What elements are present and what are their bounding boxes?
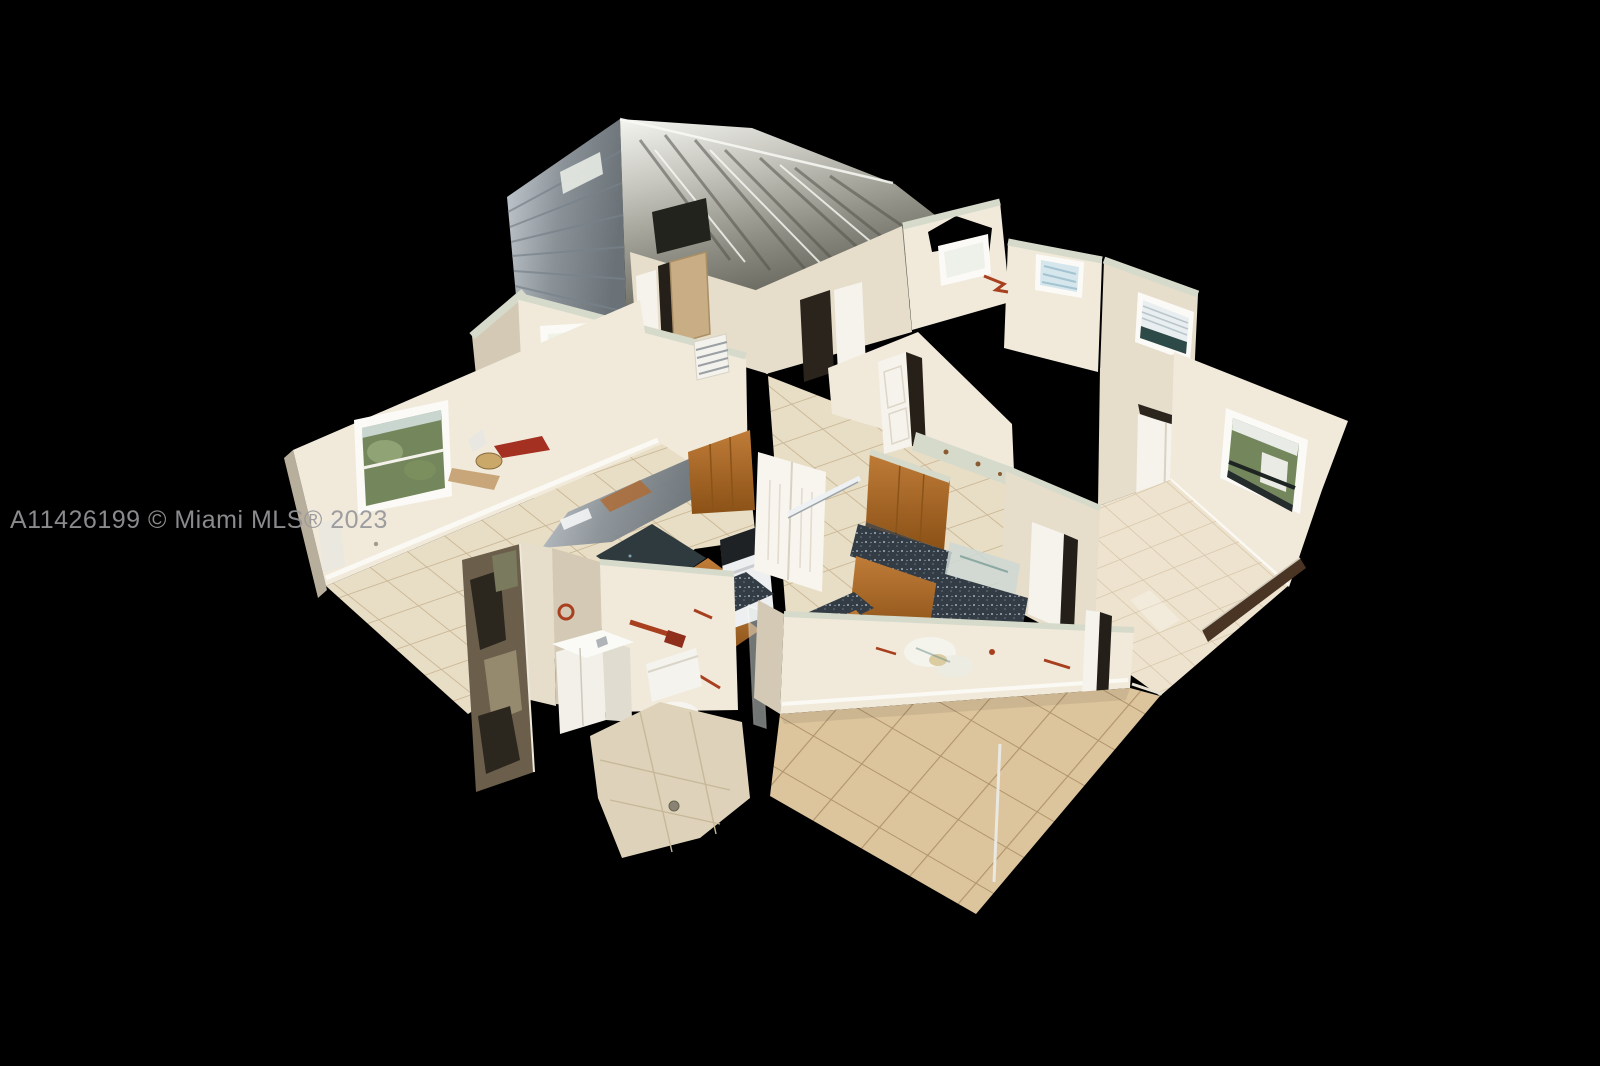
mls-photo-3d-dollhouse[interactable]: A11426199 © Miami MLS® 2023	[0, 0, 1600, 1066]
mls-watermark: A11426199 © Miami MLS® 2023	[10, 506, 388, 535]
living-room-window	[354, 400, 452, 514]
shower-drain	[669, 801, 679, 811]
entry-door-open	[670, 252, 710, 344]
bedroom-door	[1028, 522, 1064, 628]
hvac-return-grille	[694, 334, 729, 380]
bathroom-vanity	[552, 630, 634, 734]
